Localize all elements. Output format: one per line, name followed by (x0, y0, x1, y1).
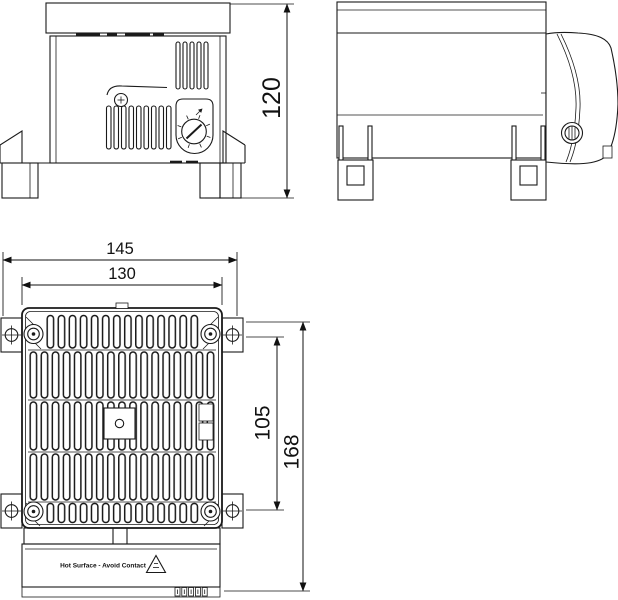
dimension-label: 130 (108, 265, 136, 283)
din-bracket-right (200, 131, 245, 198)
knob-pointer-arrow-icon (196, 109, 203, 116)
mounting-tab-bottom-left (1, 494, 22, 528)
corner-screw-icon-bottom-left (24, 502, 43, 521)
dimension-130: 130 (22, 265, 222, 305)
protection-grille (22, 303, 222, 528)
heater-technical-drawing: 120 (0, 0, 618, 600)
dimension-label: 105 (252, 405, 275, 440)
dimension-105: 105 (246, 337, 284, 510)
mounting-tab-top-right (222, 318, 243, 352)
corner-screw-icon-bottom-right (201, 502, 220, 521)
dimension-label: 168 (281, 434, 304, 469)
screw-icon (115, 94, 128, 107)
corner-screw-icon-top-left (24, 325, 43, 344)
cover-tab (603, 146, 612, 158)
thermostat-panel (176, 99, 213, 154)
front-view: Hot Surface - Avoid Contact (1, 303, 243, 597)
vent-slots-lower (107, 106, 172, 149)
side-view (0, 3, 245, 198)
base-strip (24, 528, 220, 544)
screw-callout-line (107, 86, 167, 95)
mounting-tab-bottom-right (222, 494, 243, 528)
dimension-label: 145 (106, 240, 134, 258)
mounting-tab-top-left (1, 318, 22, 352)
grille-slats-row4 (28, 452, 216, 502)
top-cover (46, 3, 230, 33)
foot-right (200, 163, 220, 198)
base-panel: Hot Surface - Avoid Contact (22, 528, 220, 597)
corner-screw-icon-top-right (201, 325, 220, 344)
grille-slats-row5 (45, 502, 200, 524)
cover-screw-icon (562, 123, 583, 144)
warning-label: Hot Surface - Avoid Contact (22, 544, 220, 587)
profile-view (337, 2, 618, 200)
warning-text: Hot Surface - Avoid Contact (60, 563, 147, 570)
base-bottom-strip (22, 587, 220, 597)
dimension-168: 168 (224, 322, 310, 591)
grille-slats-row1 (45, 314, 200, 351)
dimension-label: 120 (258, 77, 286, 119)
thermostat-knob (182, 119, 207, 144)
frame-top-tab (116, 303, 128, 309)
vent-slots-upper (176, 42, 208, 89)
din-clip-left (338, 126, 373, 200)
certification-marks (175, 588, 207, 597)
warning-triangle-icon (147, 556, 166, 573)
foot-left (2, 163, 38, 198)
din-clip-right (511, 126, 546, 200)
center-hub (104, 408, 135, 439)
grille-slats-row2 (28, 350, 216, 400)
cable-cover (546, 32, 618, 163)
din-bracket-left (0, 131, 38, 198)
technical-drawing-canvas: 120 (0, 0, 618, 600)
